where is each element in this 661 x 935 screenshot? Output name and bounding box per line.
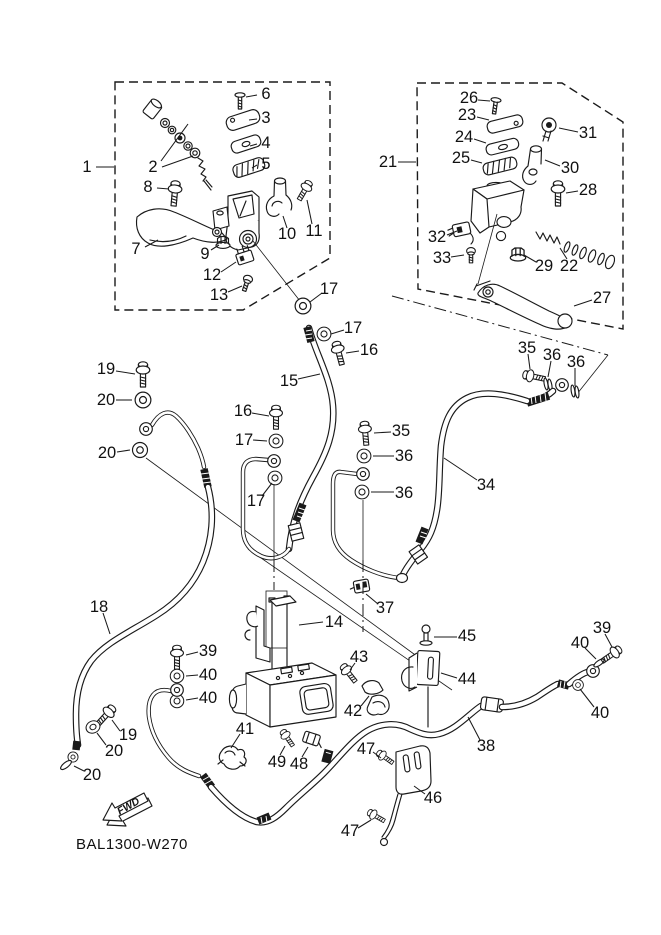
drawing-code: BAL1300-W270 [76,836,188,853]
banjo-fitting-icon [556,379,569,392]
leader-line [186,675,198,676]
clamp-48-icon [302,731,324,748]
part-number-label: 33 [433,249,451,267]
front-master-cylinder-box [115,82,330,310]
bolt-49-icon [278,727,297,748]
brake-pipe-center [243,405,289,558]
bolt-8-icon [167,180,183,206]
part-number-label: 39 [593,619,611,637]
part-number-label: 22 [560,257,578,275]
part-number-label: 20 [83,766,101,784]
leader-line [441,673,457,678]
part-number-label: 7 [131,240,140,258]
part-number-label: 25 [452,149,470,167]
leader-line [117,450,130,452]
leader-line [246,95,257,97]
fwd-arrow: FWD [103,793,152,826]
part-number-label: 39 [199,642,217,660]
brake-hose-18 [59,362,212,771]
part-number-label: 20 [98,444,116,462]
leader-line [474,139,486,143]
part-number-label: 19 [97,360,115,378]
leader-line [253,440,267,441]
leader-line [298,374,320,379]
part-number-label: 47 [341,822,359,840]
leader-line [299,622,323,625]
bracket-44 [402,625,440,727]
part-number-label: 11 [305,222,322,240]
clamp-30-icon [523,146,542,185]
damper-42-icon [362,681,389,715]
part-number-label: 35 [392,422,410,440]
part-number-label: 30 [561,159,579,177]
leader-line [252,413,269,416]
leader-line [307,200,312,224]
part-number-label: 48 [290,755,308,773]
part-number-label: 40 [571,634,589,652]
part-number-label: 35 [518,339,536,357]
part-number-label: 44 [458,670,476,688]
washer-17-icon [317,327,331,341]
part-number-label: 2 [148,158,157,176]
leader-line [186,652,198,655]
washer-17-icon [295,298,311,314]
bolt-16-icon [270,405,283,429]
leader-line [545,160,560,166]
clamp-37-icon [349,579,370,594]
part-number-label: 26 [460,89,478,107]
washer-17-icon [268,471,282,485]
bolt-47-icon [365,807,386,825]
washer-20-icon [59,759,72,771]
brake-pipe-center-right [333,421,399,578]
washer-17-icon [269,434,283,448]
brake-hose-38 [149,643,625,823]
part-number-label: 38 [477,737,495,755]
part-number-label: 16 [234,402,252,420]
washer-40-icon [573,680,584,691]
bolt-19-icon [136,362,150,387]
part-number-label: 17 [247,492,265,510]
leader-line [116,371,135,374]
part-number-label: 42 [344,702,362,720]
part-number-label: 10 [278,225,296,243]
part-number-label: 31 [579,124,597,142]
part-number-label: 14 [325,613,343,631]
washer-20-icon [133,443,148,458]
leader-line [566,191,578,193]
part-labels: 1263458791011121317212623242531302832332… [74,85,612,840]
washer-36-icon [355,485,369,499]
leader-line [559,128,578,132]
leader-line [444,458,477,480]
part-number-label: 47 [357,740,375,758]
part-number-label: 18 [90,598,108,616]
brake-lever-27 [474,281,572,329]
leader-line [186,698,198,700]
clamp-10-icon [266,178,291,216]
part-number-label: 29 [535,257,553,275]
part-number-label: 40 [591,704,609,722]
part-number-label: 36 [543,346,561,364]
part-number-label: 46 [424,789,442,807]
part-number-label: 20 [105,742,123,760]
switch-32-icon [447,222,471,238]
leader-line [358,820,371,828]
part-number-label: 17 [344,319,362,337]
part-number-label: 36 [567,353,585,371]
part-number-label: 5 [261,155,270,173]
leader-line [361,696,369,706]
banjo-fitting-icon [140,423,153,436]
leader-line [478,100,490,101]
washer-40-icon [170,669,184,683]
brake-hose-15 [288,298,348,549]
clamp-41-icon [218,746,246,769]
piston-kit-2 [142,97,212,190]
master-cylinder-body-2 [471,181,524,241]
banjo-fitting-icon [171,684,184,697]
bolt-31-icon [542,118,556,141]
part-number-label: 34 [477,476,495,494]
bolt-35-icon [522,368,547,385]
part-number-label: 43 [350,648,368,666]
part-number-label: 28 [579,181,597,199]
bolt-11-icon [294,178,315,202]
leader-line [471,160,482,163]
washer-36-icon [357,449,371,463]
leader-line [346,351,359,353]
bolt-16-icon [329,340,348,366]
part-number-label: 3 [261,109,270,127]
banjo-fitting-icon [268,455,281,468]
leader-line [374,432,391,433]
part-number-label: 41 [236,720,254,738]
abs-hydraulic-unit [229,663,336,727]
leader-line [451,255,464,257]
leader-line [221,262,236,272]
part-number-label: 40 [199,689,217,707]
leader-line [331,330,344,334]
washer-20-icon [135,392,151,408]
bolt-28-icon [551,181,565,206]
part-number-label: 20 [97,391,115,409]
bolt-39-icon [171,645,184,669]
part-number-label: 45 [458,627,476,645]
leader-line [103,613,110,634]
screw-13-icon [240,274,254,292]
part-number-label: 8 [143,178,152,196]
banjo-fitting-icon [357,468,370,481]
leader-line [228,286,242,292]
part-number-label: 27 [593,289,611,307]
part-number-label: 16 [360,341,378,359]
part-number-label: 17 [235,431,253,449]
bolt-47-icon [374,748,395,767]
leader-line [157,188,169,189]
bracket-14 [245,484,363,670]
part-number-label: 6 [261,85,270,103]
exploded-parts-diagram: FWD BAL1300-W270 12634587910111213172126… [0,0,661,935]
part-number-label: 36 [395,484,413,502]
part-number-label: 21 [379,153,397,171]
leader-line [477,117,489,120]
part-number-label: 36 [395,447,413,465]
screw-26-icon [489,97,501,114]
leader-line [574,300,592,306]
screw-33-icon [467,248,476,263]
nut-29-icon [510,248,525,261]
part-number-label: 12 [203,266,221,284]
part-number-label: 13 [210,286,228,304]
part-number-label: 15 [280,372,298,390]
parts-diagram-page: FWD BAL1300-W270 12634587910111213172126… [0,0,661,935]
part-number-label: 23 [458,106,476,124]
part-number-label: 17 [320,280,338,298]
leader-line [162,156,193,167]
bolt-35-icon [358,421,373,446]
part-number-label: 4 [261,134,270,152]
part-number-label: 24 [455,128,473,146]
part-number-label: 32 [428,228,446,246]
part-number-label: 49 [268,753,286,771]
part-number-label: 9 [200,245,209,263]
part-number-label: 37 [376,599,394,617]
screw-6-icon [235,93,245,109]
part-number-label: 40 [199,666,217,684]
part-number-label: 1 [82,158,91,176]
